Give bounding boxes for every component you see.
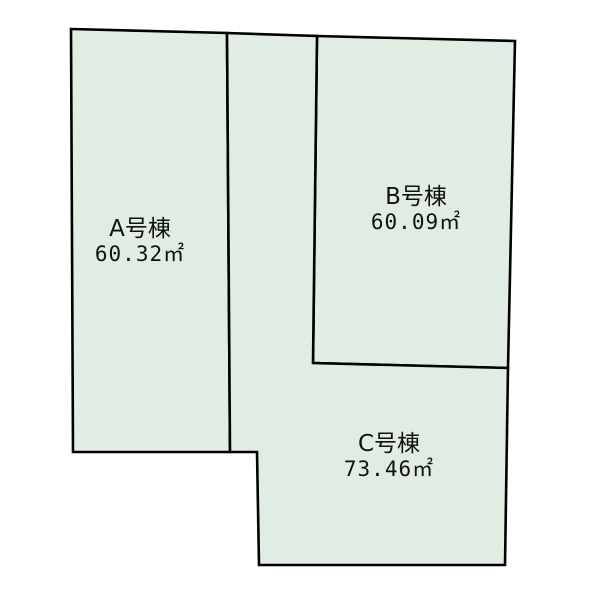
parcel-b-label: B号棟 (385, 184, 447, 210)
parcel-c-area-value: 73.46 (344, 457, 412, 481)
parcel-a-area: 60.32㎡ (95, 242, 185, 266)
parcel-b-area: 60.09㎡ (371, 210, 461, 234)
parcel-c-label: C号棟 (358, 431, 420, 457)
parcel-b-area-value: 60.09 (371, 210, 439, 234)
parcel-c-area: 73.46㎡ (344, 457, 434, 481)
lot-layout-svg: A号棟 60.32㎡ B号棟 60.09㎡ C号棟 73.46㎡ (0, 0, 600, 600)
parcel-b-area-unit: ㎡ (439, 210, 461, 234)
lot-layout-diagram: A号棟 60.32㎡ B号棟 60.09㎡ C号棟 73.46㎡ (0, 0, 600, 600)
parcel-a-label: A号棟 (109, 216, 171, 242)
parcel-a-area-value: 60.32 (95, 242, 163, 266)
parcel-c-area-unit: ㎡ (412, 457, 434, 481)
parcel-a-area-unit: ㎡ (163, 242, 185, 266)
